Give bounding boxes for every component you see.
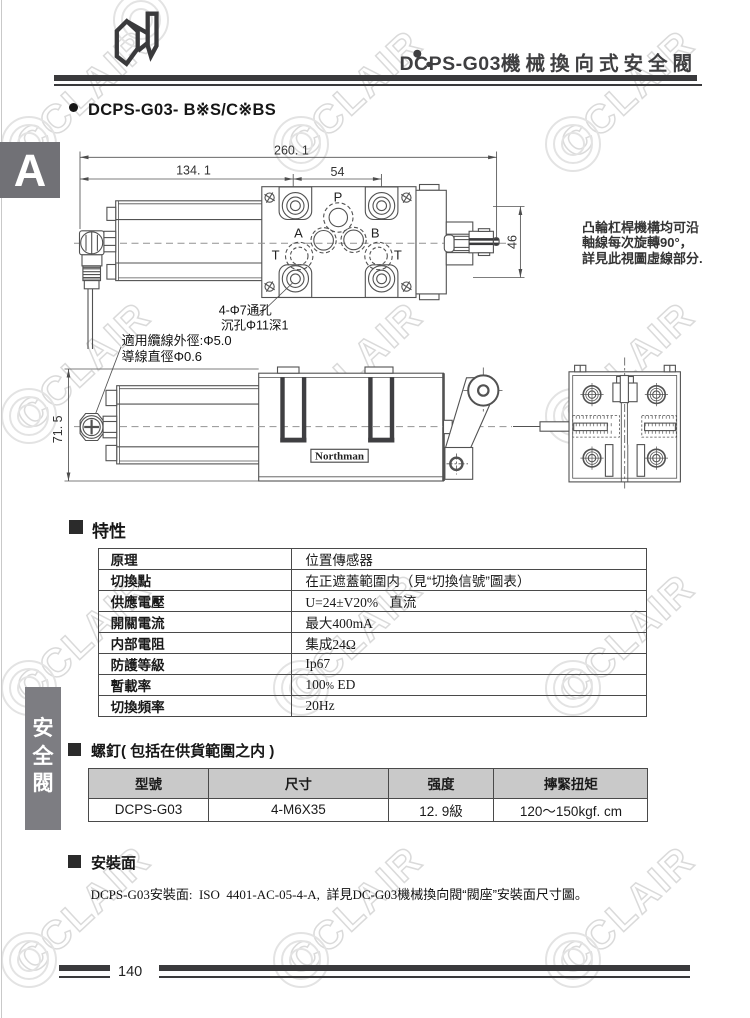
svg-text:A: A [294, 226, 303, 241]
svg-text:71. 5: 71. 5 [51, 415, 65, 443]
svg-text:適用纜線外徑:Φ5.0: 適用纜線外徑:Φ5.0 [122, 333, 232, 348]
svg-text:134. 1: 134. 1 [176, 164, 211, 178]
svg-text:260. 1: 260. 1 [274, 144, 309, 158]
svg-text:T: T [272, 248, 280, 263]
svg-text:4-Φ7通孔: 4-Φ7通孔 [219, 304, 273, 318]
svg-text:T: T [394, 248, 402, 263]
svg-text:B: B [371, 226, 380, 241]
svg-text:Northman: Northman [315, 450, 364, 462]
svg-text:54: 54 [331, 165, 345, 179]
svg-text:導線直徑Φ0.6: 導線直徑Φ0.6 [122, 349, 202, 364]
svg-text:沉孔Φ11深1: 沉孔Φ11深1 [221, 319, 288, 333]
svg-text:46: 46 [506, 235, 520, 249]
svg-text:P: P [334, 190, 343, 205]
